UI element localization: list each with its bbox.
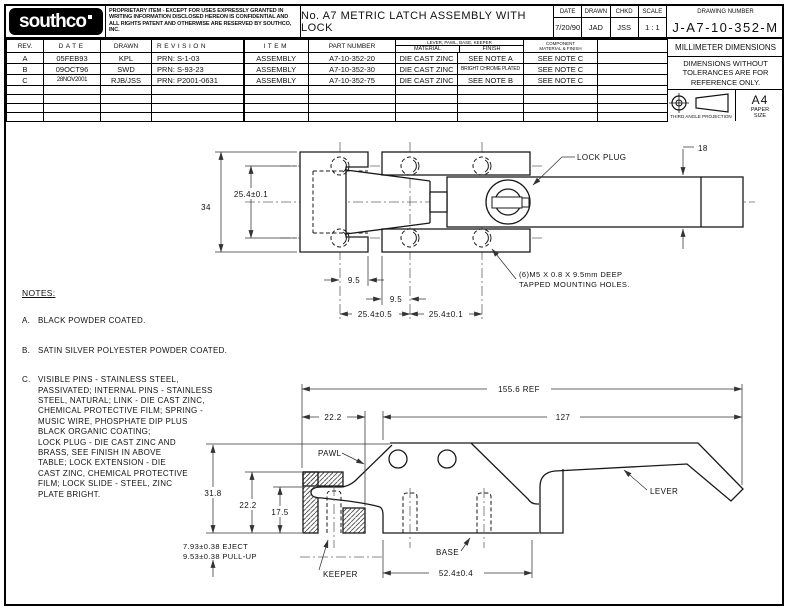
col-header-blank — [598, 40, 668, 53]
drawing-number-value: J-A7-10-352-M — [667, 17, 784, 37]
leader-lever — [624, 470, 647, 490]
meta-date: DATE 7/20/90 — [554, 6, 582, 37]
blank-cell — [598, 75, 668, 86]
lever-grip-outline — [540, 469, 563, 533]
table-row-empty — [7, 104, 668, 113]
label-lock-plug: LOCK PLUG — [577, 153, 626, 162]
label-mounting-holes-2: TAPPED MOUNTING HOLES. — [519, 280, 630, 289]
meta-chkd: CHKD JSS — [611, 6, 639, 37]
part-number-cell: A7-10-352-30 — [309, 64, 396, 75]
dim-base-length: 52.4±0.4 — [439, 569, 473, 578]
projection-label: THIRD ANGLE PROJECTION — [670, 114, 732, 119]
meta-scale: SCALE 1 : 1 — [639, 6, 666, 37]
date-cell: 28NOV2001 — [44, 75, 101, 86]
table-row-empty — [7, 95, 668, 104]
paper-size-sub: PAPER SIZE — [751, 107, 769, 119]
leader-base — [461, 538, 470, 551]
info-box: MILLIMETER DIMENSIONS DIMENSIONS WITHOUT… — [667, 39, 784, 120]
chkd-label: CHKD — [611, 6, 638, 18]
item-cell: ASSEMBLY — [244, 75, 309, 86]
logo-dot-icon — [88, 15, 92, 19]
component-cell: SEE NOTE C — [524, 75, 598, 86]
tolerance-note: DIMENSIONS WITHOUT TOLERANCES ARE FOR RE… — [667, 57, 784, 90]
dim-overall-length: 155.6 REF — [498, 385, 540, 394]
dim-edge-offset-1: 9.5 — [348, 276, 360, 285]
col-header-item: ITEM — [244, 40, 309, 53]
logo-text: southco — [19, 11, 86, 33]
date-value: 7/20/90 — [554, 18, 581, 37]
label-mounting-holes-1: (6)M5 X 0.8 X 9.5mm DEEP — [519, 270, 622, 279]
component-cell: SEE NOTE C — [524, 53, 598, 64]
dim-hole-pitch-2: 25.4±0.1 — [429, 310, 463, 319]
blank-cell — [598, 64, 668, 75]
label-keeper: KEEPER — [323, 570, 358, 579]
meta-block: DATE 7/20/90 DRAWN JAD CHKD JSS SCALE 1 … — [554, 6, 667, 37]
projection-cell: THIRD ANGLE PROJECTION — [667, 90, 736, 121]
table-row: B 09OCT96 SWD PRN: S-93-23 ASSEMBLY A7-1… — [7, 64, 668, 75]
col-header-drawn: DRAWN — [101, 40, 152, 53]
item-cell: ASSEMBLY — [244, 53, 309, 64]
finish-cell: BRIGHT CHROME PLATED — [458, 64, 524, 75]
southco-logo: southco — [9, 8, 103, 35]
dim-lever-length: 127 — [556, 413, 571, 422]
col-header-rev: REV. — [7, 40, 44, 53]
date-cell: 09OCT96 — [44, 64, 101, 75]
title-block: southco PROPRIETARY ITEM - EXCEPT FOR US… — [6, 6, 784, 39]
drawn-label: DRAWN — [582, 6, 609, 18]
col-header-finish: FINISH — [460, 46, 523, 52]
lock-plug — [486, 180, 530, 224]
item-cell: ASSEMBLY — [244, 64, 309, 75]
blank-cell — [598, 53, 668, 64]
link-step — [430, 192, 447, 212]
chkd-value: JSS — [611, 18, 638, 37]
rev-cell: C — [7, 75, 44, 86]
dim-edge-offset-2: 9.5 — [390, 295, 402, 304]
side-view-extension-lines — [206, 384, 742, 578]
drawing-title: No. A7 METRIC LATCH ASSEMBLY WITH LOCK — [301, 6, 554, 37]
dim-hole-row-span: 25.4±0.1 — [234, 190, 268, 199]
revision-cell: PRN: P2001-0631 — [152, 75, 244, 86]
base-outline-right — [471, 443, 539, 504]
base-plan-top-band — [382, 152, 530, 175]
dim-keeper-depth: 22.2 — [324, 413, 341, 422]
part-number-cell: A7-10-352-20 — [309, 53, 396, 64]
material-cell: DIE CAST ZINC — [396, 75, 458, 86]
rev-cell: A — [7, 53, 44, 64]
part-number-cell: A7-10-352-75 — [309, 75, 396, 86]
date-label: DATE — [554, 6, 581, 18]
material-cell: DIE CAST ZINC — [396, 64, 458, 75]
label-base: BASE — [436, 548, 459, 557]
revision-table: REV. DATE DRAWN REVISION ITEM PART NUMBE… — [6, 39, 668, 122]
leader-pawl — [342, 453, 364, 464]
drawing-views: 34 25.4±0.1 9.5 9.5 25.4±0.5 25.4±0.1 18… — [0, 120, 790, 612]
drawing-number-cell: DRAWING NUMBER J-A7-10-352-M — [667, 6, 784, 37]
keeper-section-leg — [303, 472, 318, 533]
table-row-empty — [7, 86, 668, 95]
drawing-sheet: southco PROPRIETARY ITEM - EXCEPT FOR US… — [0, 0, 790, 612]
leader-keeper — [319, 540, 328, 570]
table-row: A 05FEB93 KPL PRN: S-1-03 ASSEMBLY A7-10… — [7, 53, 668, 64]
dim-overall-height: 31.8 — [204, 489, 221, 498]
dim-height: 34 — [201, 203, 211, 212]
col-header-date: DATE — [44, 40, 101, 53]
meta-drawn: DRAWN JAD — [582, 6, 610, 37]
scale-label: SCALE — [639, 6, 666, 18]
drawn-cell: KPL — [101, 53, 152, 64]
dim-keeper-height: 22.2 — [239, 501, 256, 510]
leader-mounting-holes — [492, 249, 516, 279]
base-hole — [438, 450, 456, 468]
revision-cell: PRN: S-93-23 — [152, 64, 244, 75]
col-header-group: LEVER, PAWL, BASE, KEEPER MATERIAL FINIS… — [396, 40, 524, 53]
drawing-number-label: DRAWING NUMBER — [667, 6, 784, 17]
label-pawl: PAWL — [318, 449, 342, 458]
dim-hole-pitch-1: 25.4±0.5 — [358, 310, 392, 319]
drawn-value: JAD — [582, 18, 609, 37]
third-angle-projection-icon — [668, 93, 734, 113]
label-lever: LEVER — [650, 487, 678, 496]
material-cell: DIE CAST ZINC — [396, 53, 458, 64]
finish-cell: SEE NOTE B — [458, 75, 524, 86]
keeper-section-lip — [343, 508, 365, 533]
drawn-cell: RJB/JSS — [101, 75, 152, 86]
paper-size-cell: A4 PAPER SIZE — [736, 90, 784, 121]
side-view: 155.6 REF 127 22.2 31.8 22.2 17.5 7.93±0… — [183, 383, 743, 579]
millimeter-dimensions-note: MILLIMETER DIMENSIONS — [667, 39, 784, 57]
col-header-material: MATERIAL — [396, 46, 460, 52]
rev-cell: B — [7, 64, 44, 75]
scale-value: 1 : 1 — [639, 18, 666, 37]
proprietary-notice: PROPRIETARY ITEM - EXCEPT FOR USES EXPRE… — [106, 6, 301, 37]
base-hole — [389, 450, 407, 468]
col-header-revision: REVISION — [152, 40, 244, 53]
finish-cell: SEE NOTE A — [458, 53, 524, 64]
revision-cell: PRN: S-1-03 — [152, 53, 244, 64]
paper-size: A4 — [752, 93, 769, 107]
dim-eject: 7.93±0.38 EJECT — [183, 542, 248, 551]
dim-slot-height: 17.5 — [271, 508, 288, 517]
component-cell: SEE NOTE C — [524, 64, 598, 75]
logo-cell: southco — [6, 6, 106, 37]
top-view: 34 25.4±0.1 9.5 9.5 25.4±0.5 25.4±0.1 18… — [201, 142, 755, 322]
table-row: C 28NOV2001 RJB/JSS PRN: P2001-0631 ASSE… — [7, 75, 668, 86]
base-plan-bottom-band — [382, 229, 530, 252]
dim-lever-width: 18 — [698, 144, 708, 153]
table-header-row: REV. DATE DRAWN REVISION ITEM PART NUMBE… — [7, 40, 668, 53]
drawn-cell: SWD — [101, 64, 152, 75]
dim-pull-up: 9.53±0.38 PULL-UP — [183, 552, 257, 561]
col-header-part-number: PART NUMBER — [309, 40, 396, 53]
col-header-component: COMPONENT MATERIAL & FINISH — [524, 40, 598, 53]
date-cell: 05FEB93 — [44, 53, 101, 64]
